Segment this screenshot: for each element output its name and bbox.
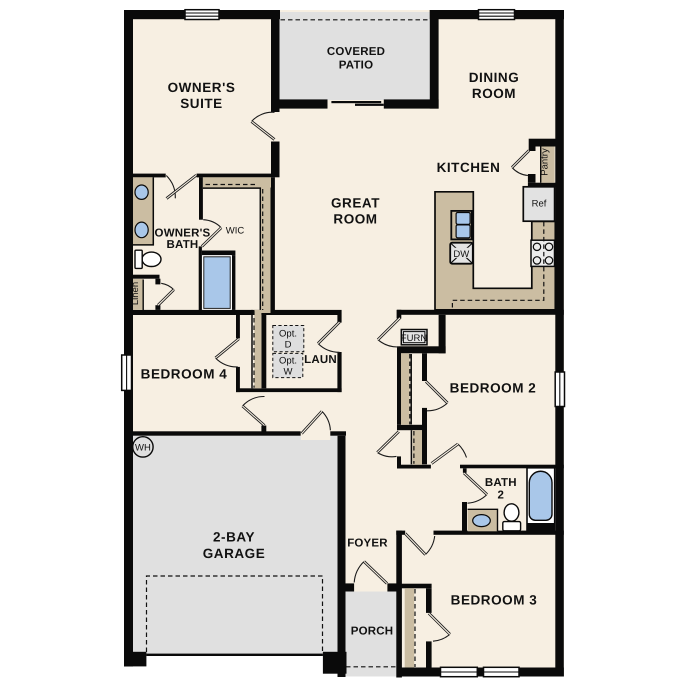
svg-text:DW: DW: [453, 249, 469, 260]
svg-text:BEDROOM 4: BEDROOM 4: [141, 367, 228, 382]
svg-text:WH: WH: [135, 442, 151, 453]
svg-text:Pantry: Pantry: [540, 148, 551, 176]
svg-text:GARAGE: GARAGE: [203, 546, 266, 561]
svg-text:BATH: BATH: [167, 239, 199, 251]
svg-text:COVERED: COVERED: [327, 46, 385, 58]
svg-text:BATH: BATH: [485, 477, 517, 489]
svg-text:BEDROOM 3: BEDROOM 3: [451, 593, 538, 608]
svg-text:DINING: DINING: [469, 70, 520, 85]
svg-text:FOYER: FOYER: [347, 538, 388, 550]
svg-text:2-BAY: 2-BAY: [213, 530, 255, 545]
svg-text:Opt.: Opt.: [279, 356, 297, 367]
svg-text:Opt.: Opt.: [279, 329, 297, 340]
svg-text:W: W: [284, 367, 293, 378]
svg-text:ROOM: ROOM: [472, 86, 516, 101]
svg-text:LAUN: LAUN: [304, 354, 337, 366]
svg-text:OWNER'S: OWNER'S: [168, 80, 236, 95]
svg-text:SUITE: SUITE: [180, 96, 223, 111]
svg-text:GREAT: GREAT: [331, 196, 380, 211]
svg-text:BEDROOM 2: BEDROOM 2: [450, 381, 537, 396]
svg-text:PORCH: PORCH: [351, 626, 394, 638]
svg-text:Ref: Ref: [532, 199, 547, 210]
svg-text:D: D: [285, 340, 292, 351]
svg-text:OWNER'S: OWNER'S: [155, 228, 211, 240]
svg-text:ROOM: ROOM: [333, 212, 377, 227]
svg-text:KITCHEN: KITCHEN: [437, 160, 501, 175]
svg-text:Linen: Linen: [130, 282, 141, 305]
svg-text:2: 2: [497, 490, 504, 502]
svg-text:FURN: FURN: [401, 333, 428, 344]
svg-text:WIC: WIC: [226, 226, 245, 237]
svg-text:PATIO: PATIO: [339, 60, 373, 72]
